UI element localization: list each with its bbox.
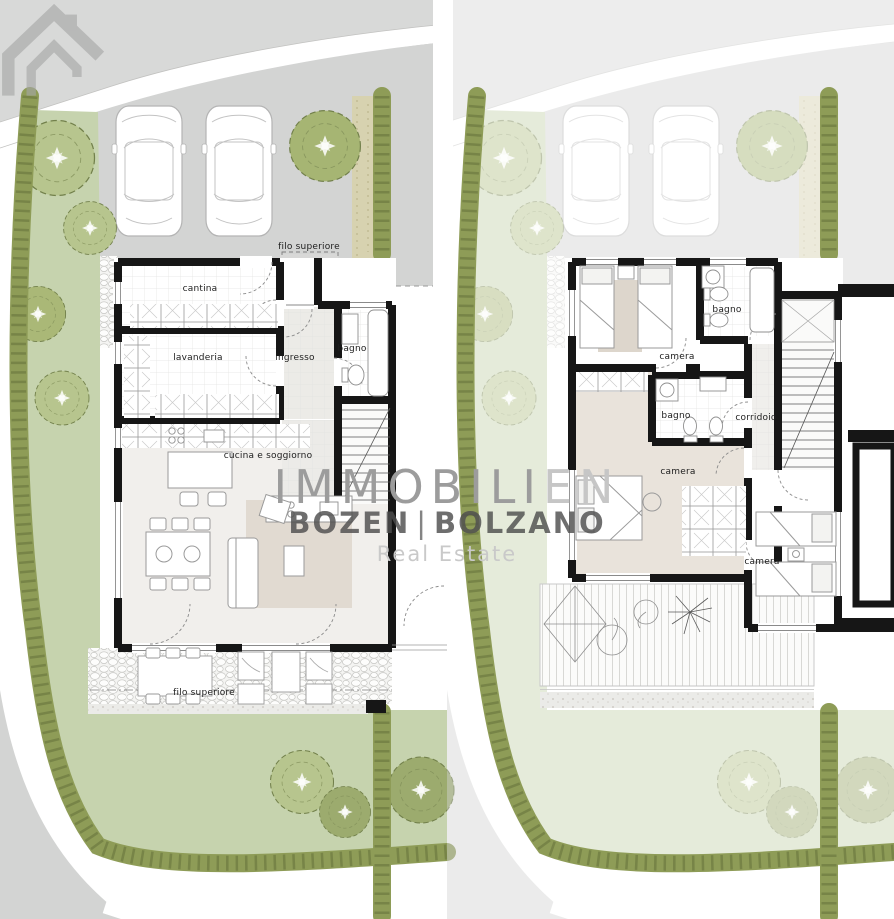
watermark-city: BOZEN|BOLZANO — [288, 509, 605, 538]
label-camera-1: camera — [659, 352, 694, 362]
label-filo-superiore-bottom: filo superiore — [173, 688, 235, 698]
label-ingresso: ingresso — [275, 353, 314, 363]
label-bagno-1: bagno — [712, 305, 741, 315]
watermark-brand: IMMOBILIEN — [274, 464, 621, 510]
label-bagno-2: bagno — [661, 411, 690, 421]
label-filo-superiore-top: filo superiore — [278, 242, 340, 252]
panel-divider — [433, 0, 453, 298]
label-lavanderia: lavanderia — [173, 353, 223, 363]
label-corridoio: corridoio — [735, 413, 776, 423]
watermark-tagline: Real Estate — [377, 544, 517, 565]
label-cantina: cantina — [183, 284, 218, 294]
label-bagno-ground: bagno — [337, 344, 366, 354]
label-camera-2: camera — [660, 467, 695, 477]
floorplan-sheet: filo superiore cantina lavanderia ingres… — [0, 0, 894, 919]
label-camera-3: camera — [744, 557, 779, 567]
house-logo-icon — [0, 0, 104, 104]
